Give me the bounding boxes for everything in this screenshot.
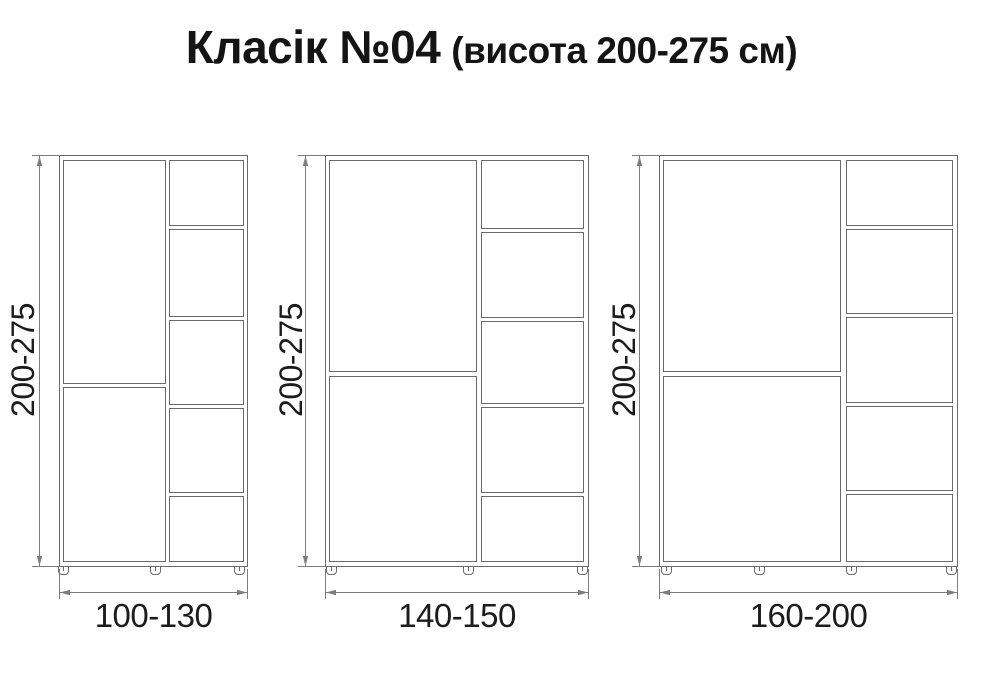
shelf-compartment	[169, 160, 244, 226]
title-product-name: Класік №04	[186, 21, 441, 73]
shelf-compartment	[169, 320, 244, 405]
height-dimension-label: 200-275	[273, 280, 309, 440]
width-dimension-line	[325, 567, 589, 601]
shelf-compartment	[481, 160, 584, 229]
width-dimension-label: 140-150	[325, 597, 589, 635]
title-height-range: (висота 200-275 см)	[451, 30, 797, 71]
shelf-compartment	[481, 321, 584, 404]
door-panel-top	[663, 160, 841, 372]
shelf-compartment	[846, 317, 953, 403]
shelf-compartment	[169, 496, 244, 562]
cabinet-small-outline	[59, 155, 248, 567]
shelf-compartment	[846, 229, 953, 314]
cabinet-large-outline	[659, 155, 958, 567]
door-panel-bottom	[663, 376, 841, 562]
shelf-compartment	[169, 229, 244, 317]
cabinet-medium-outline	[325, 155, 589, 567]
width-dimension-label: 100-130	[59, 597, 248, 635]
width-dimension-line	[59, 567, 248, 601]
page-title: Класік №04(висота 200-275 см)	[0, 20, 983, 74]
shelf-compartment	[846, 160, 953, 226]
shelf-compartment	[846, 406, 953, 491]
height-dimension-label: 200-275	[606, 280, 642, 440]
diagram-canvas: Класік №04(висота 200-275 см) 200-275 10…	[0, 0, 983, 700]
height-dimension-label: 200-275	[5, 280, 41, 440]
shelf-compartment	[846, 494, 953, 562]
door-panel-top	[329, 160, 477, 372]
door-panel-bottom	[329, 376, 477, 562]
width-dimension-line	[659, 567, 958, 601]
width-dimension-label: 160-200	[659, 597, 958, 635]
shelf-compartment	[169, 408, 244, 493]
shelf-compartment	[481, 232, 584, 318]
door-panel-top	[63, 160, 166, 384]
shelf-compartment	[481, 496, 584, 562]
shelf-compartment	[481, 407, 584, 493]
door-panel-bottom	[63, 387, 166, 562]
